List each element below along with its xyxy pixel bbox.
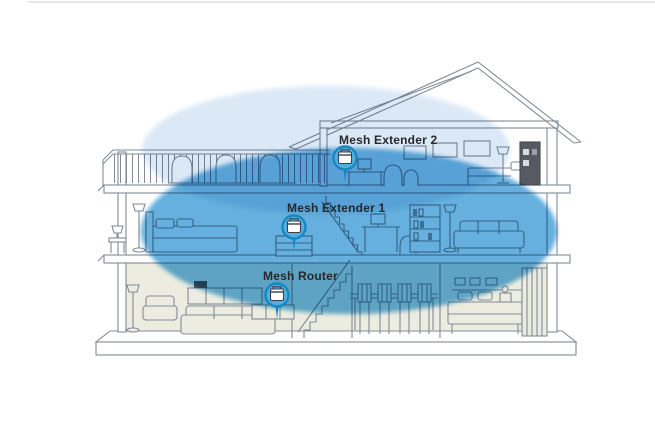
label-mesh-extender-1: Mesh Extender 1 <box>287 201 385 215</box>
wardrobe <box>522 268 547 336</box>
attic-cabinet <box>520 142 540 185</box>
mesh-device-pin-icon <box>262 282 292 328</box>
mesh-device-pin-icon <box>279 214 309 260</box>
armchair <box>143 296 177 320</box>
diagram-canvas: Mesh Extender 2 Mesh Extender 1 Mesh Rou… <box>0 0 655 423</box>
foundation-slab <box>96 331 576 355</box>
marker-mesh-extender-1 <box>279 214 309 260</box>
marker-mesh-router <box>262 282 292 328</box>
label-mesh-router: Mesh Router <box>263 269 338 283</box>
mesh-device-pin-icon <box>330 145 360 191</box>
marker-mesh-extender-2 <box>330 145 360 191</box>
